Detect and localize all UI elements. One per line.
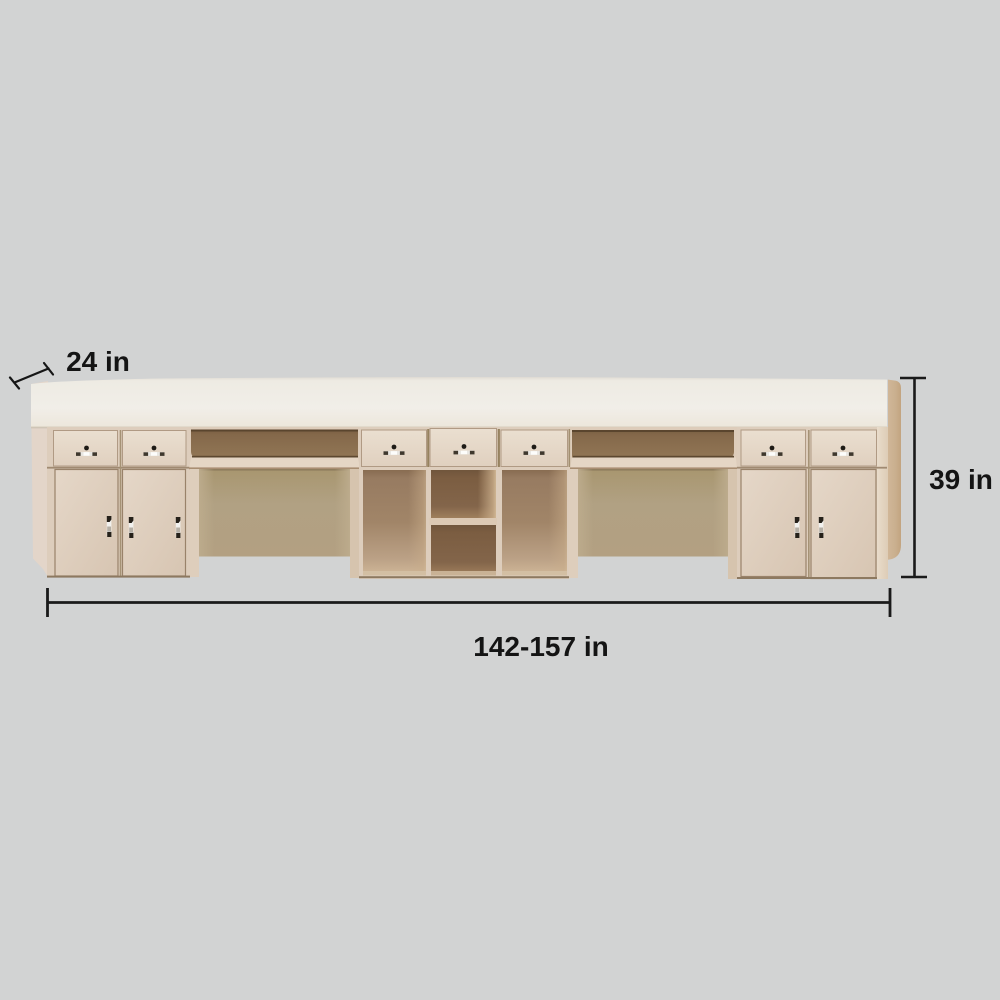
- svg-text:24 in: 24 in: [66, 346, 130, 377]
- svg-text:142-157 in: 142-157 in: [473, 631, 608, 662]
- svg-text:39 in: 39 in: [929, 464, 993, 495]
